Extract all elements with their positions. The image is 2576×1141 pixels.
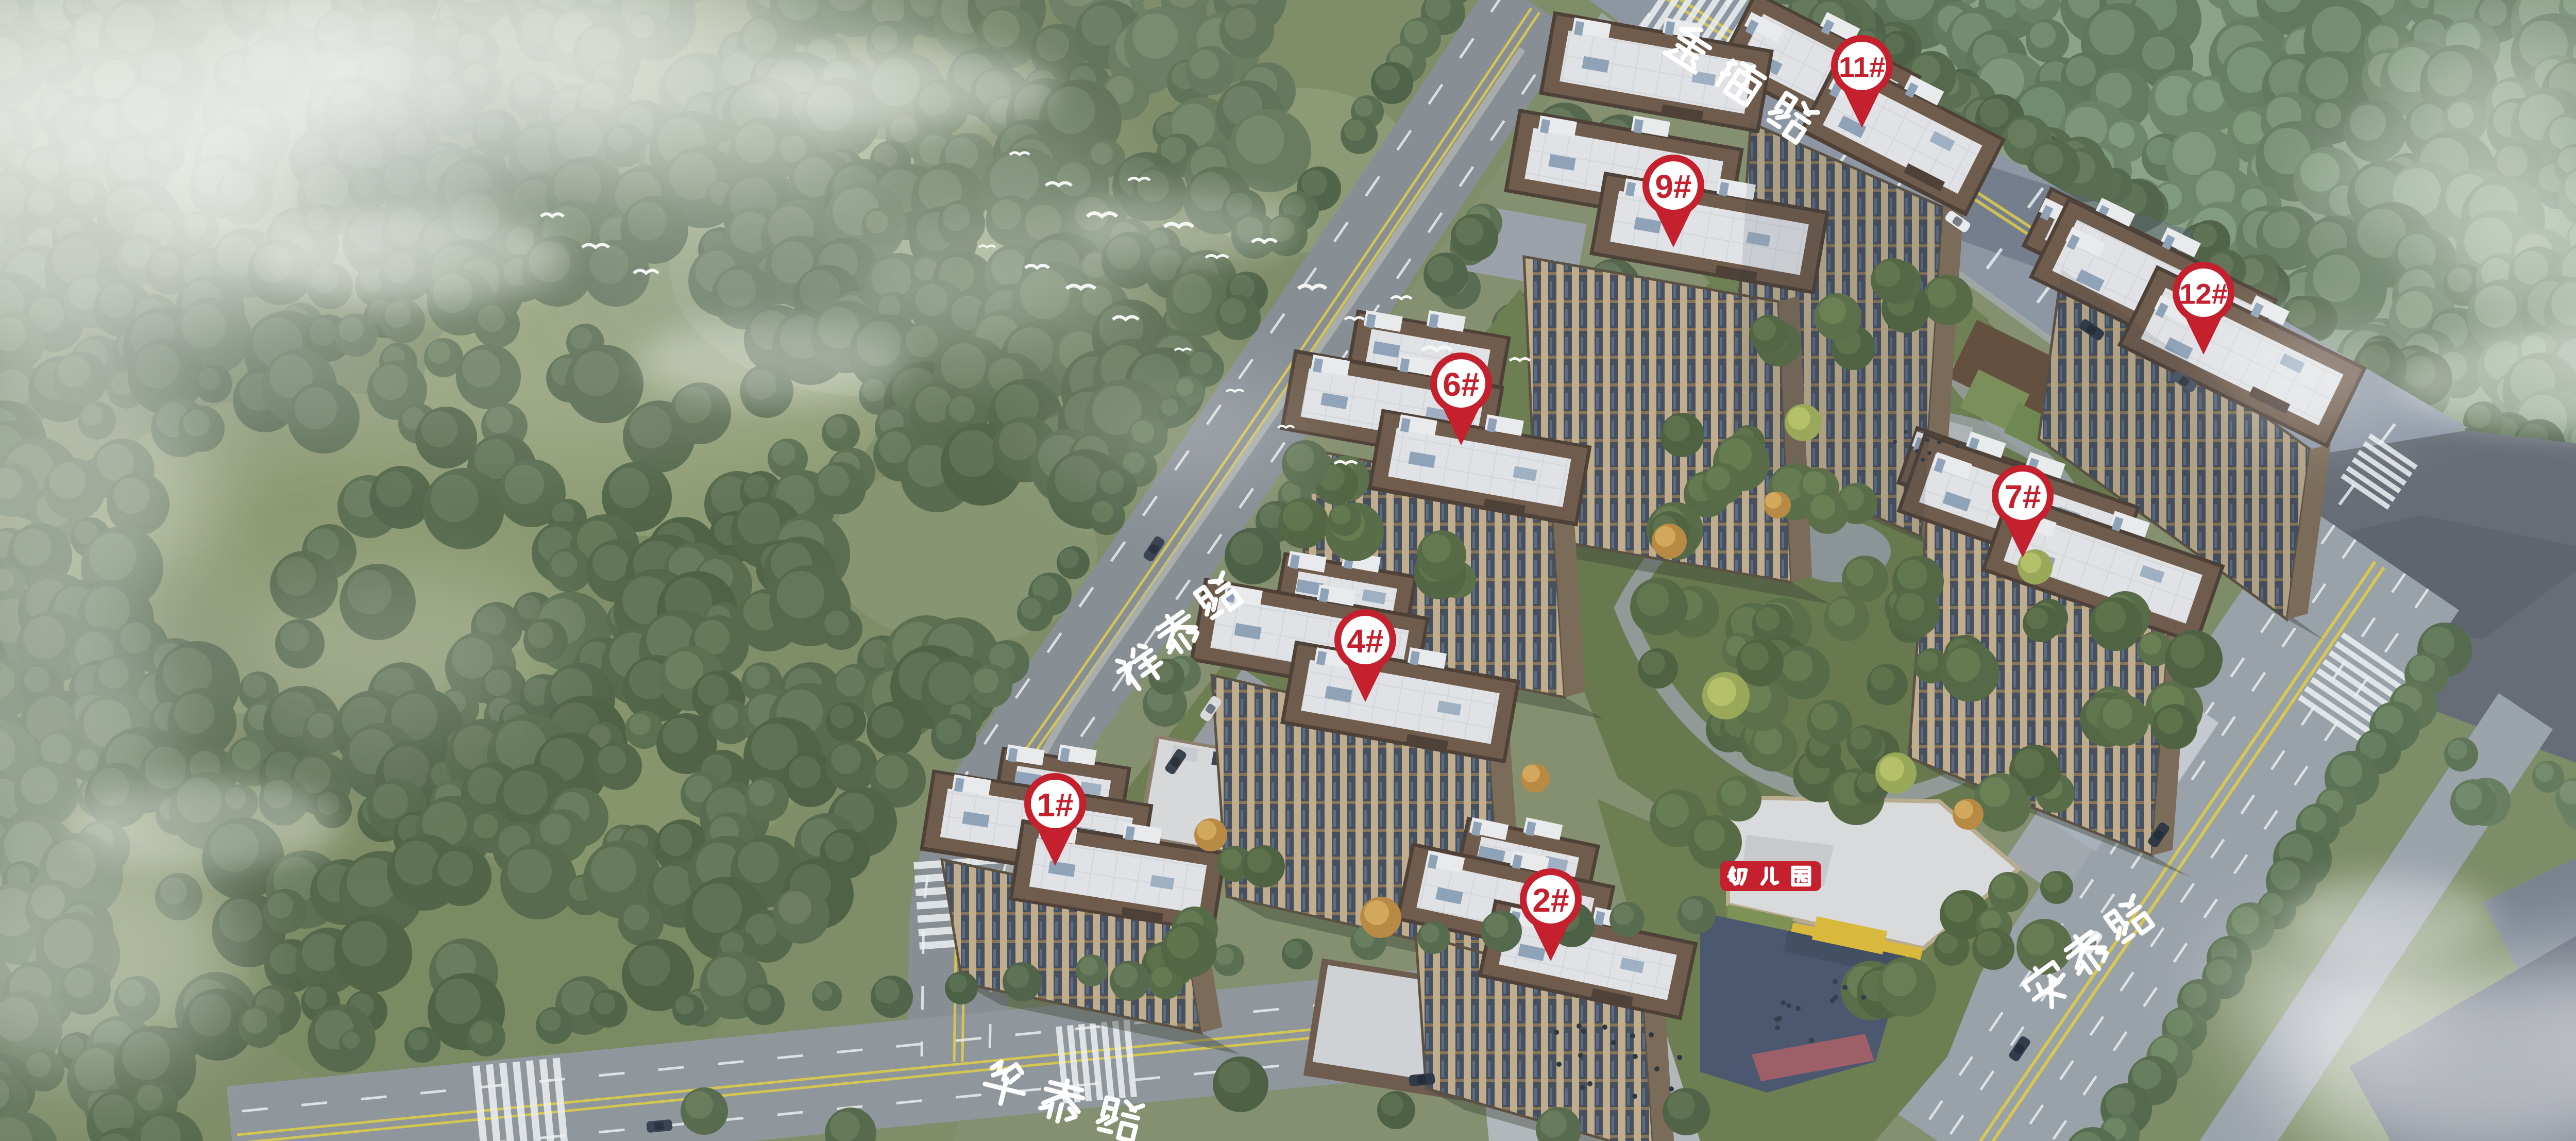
svg-text:9#: 9# bbox=[1655, 168, 1691, 205]
svg-text:12#: 12# bbox=[2179, 278, 2227, 310]
svg-text:6#: 6# bbox=[1443, 366, 1479, 403]
svg-text:11#: 11# bbox=[1839, 51, 1885, 83]
svg-text:1#: 1# bbox=[1037, 786, 1073, 824]
svg-text:4#: 4# bbox=[1347, 623, 1383, 660]
svg-text:2#: 2# bbox=[1532, 882, 1569, 919]
svg-text:7#: 7# bbox=[2004, 478, 2041, 515]
